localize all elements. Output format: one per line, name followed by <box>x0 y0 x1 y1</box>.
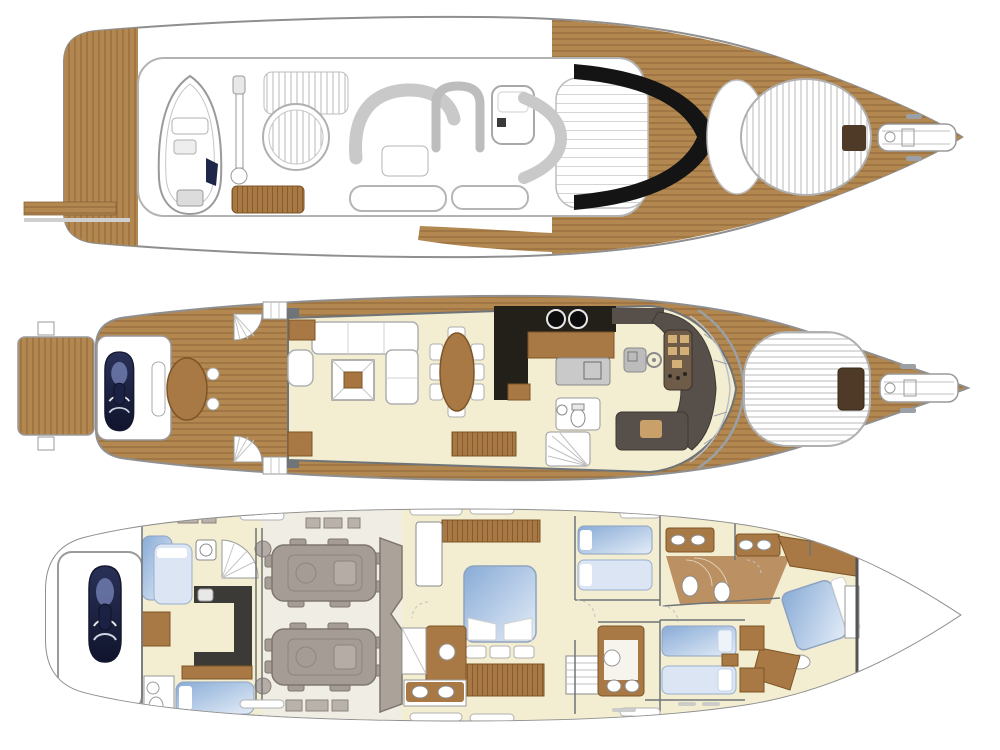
jet-ski <box>105 352 134 431</box>
master-ensuite <box>404 680 466 706</box>
basin <box>438 686 454 698</box>
crew-locker <box>142 612 170 646</box>
day-head <box>556 398 600 430</box>
side-table <box>289 320 315 340</box>
master-dresser <box>442 520 540 542</box>
aft-bench <box>350 186 446 211</box>
cooktop-burner <box>547 310 565 328</box>
armchair <box>288 350 313 386</box>
deck-hatch <box>842 125 866 151</box>
cockpit-table <box>167 358 207 420</box>
anchor-windlass <box>880 374 958 402</box>
jet-ski-garage <box>58 552 142 710</box>
basin <box>671 535 685 545</box>
crew-sink <box>198 589 213 601</box>
wardrobe <box>740 668 764 692</box>
sideboard <box>452 432 516 456</box>
yacht-deck-plans-figure <box>0 0 1000 750</box>
crew-bathroom <box>144 676 174 726</box>
mid-bathroom <box>598 626 644 696</box>
passerelle <box>24 202 130 222</box>
swim-platform <box>18 337 94 435</box>
engine-port <box>265 539 383 607</box>
main-deck-plan <box>18 296 968 480</box>
coffee-table <box>332 360 374 400</box>
aft-bench-2 <box>452 186 528 209</box>
basin <box>739 540 753 550</box>
galley-cabinets <box>528 332 614 358</box>
fuel-tank-bulkhead <box>380 538 402 712</box>
nightstand <box>722 654 738 666</box>
spa-pool <box>263 104 329 170</box>
washer <box>196 540 216 560</box>
jet-ski <box>89 566 121 662</box>
basin <box>607 680 621 692</box>
wardrobe <box>740 626 764 650</box>
toilet <box>682 576 698 596</box>
companionway-stairs <box>566 656 602 694</box>
toilet <box>714 582 730 602</box>
deck-hatch <box>838 368 864 410</box>
cooktop-burner <box>569 310 587 328</box>
refrigerator <box>556 358 610 385</box>
master-wardrobe <box>416 522 442 586</box>
side-table <box>288 432 312 456</box>
flybridge-deck-plan <box>24 17 962 257</box>
vanity-stool <box>439 644 455 660</box>
platform-step-bottom <box>38 437 54 450</box>
teak-bench <box>232 186 304 213</box>
tender-outboard <box>177 190 203 206</box>
forepeak <box>857 505 977 745</box>
platform-step-top <box>38 322 54 335</box>
toilet <box>625 680 639 692</box>
cockpit-bench <box>152 362 165 416</box>
yacht-deck-plans-page <box>0 0 1000 750</box>
master-dresser-2 <box>466 664 544 696</box>
dining-table <box>440 333 474 411</box>
sink <box>557 405 567 415</box>
basin <box>691 535 705 545</box>
cockpit-stool <box>207 368 219 380</box>
shower-drain <box>604 650 620 666</box>
basin <box>412 686 428 698</box>
anchor-windlass <box>878 124 956 151</box>
cockpit-stool <box>207 398 219 410</box>
basin <box>757 540 771 550</box>
toilet <box>571 409 585 427</box>
sink <box>147 682 159 694</box>
galley-cabinet-small <box>508 384 530 400</box>
cocktail-table <box>382 146 428 176</box>
engine-starboard <box>265 623 383 691</box>
lower-deck-plan <box>40 505 977 745</box>
